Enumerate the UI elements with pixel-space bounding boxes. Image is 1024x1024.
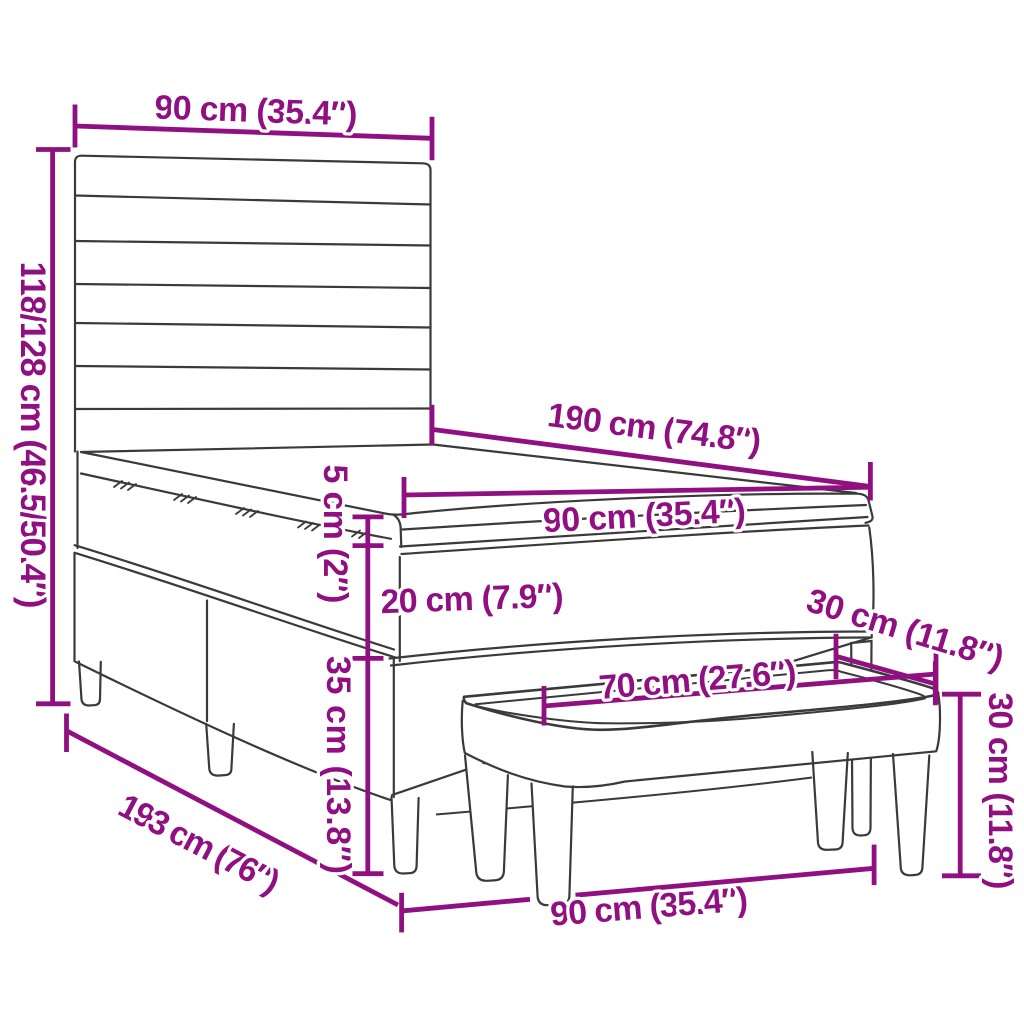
svg-text:30 cm (11.8″): 30 cm (11.8″) xyxy=(981,693,1019,890)
svg-text:90 cm (35.4″): 90 cm (35.4″) xyxy=(154,88,358,133)
svg-text:118/128 cm (46.5/50.4″): 118/128 cm (46.5/50.4″) xyxy=(13,262,52,609)
svg-text:20 cm (7.9″): 20 cm (7.9″) xyxy=(380,577,564,621)
svg-text:5 cm (2″): 5 cm (2″) xyxy=(316,465,354,604)
svg-text:35 cm (13.8″): 35 cm (13.8″) xyxy=(319,656,357,874)
